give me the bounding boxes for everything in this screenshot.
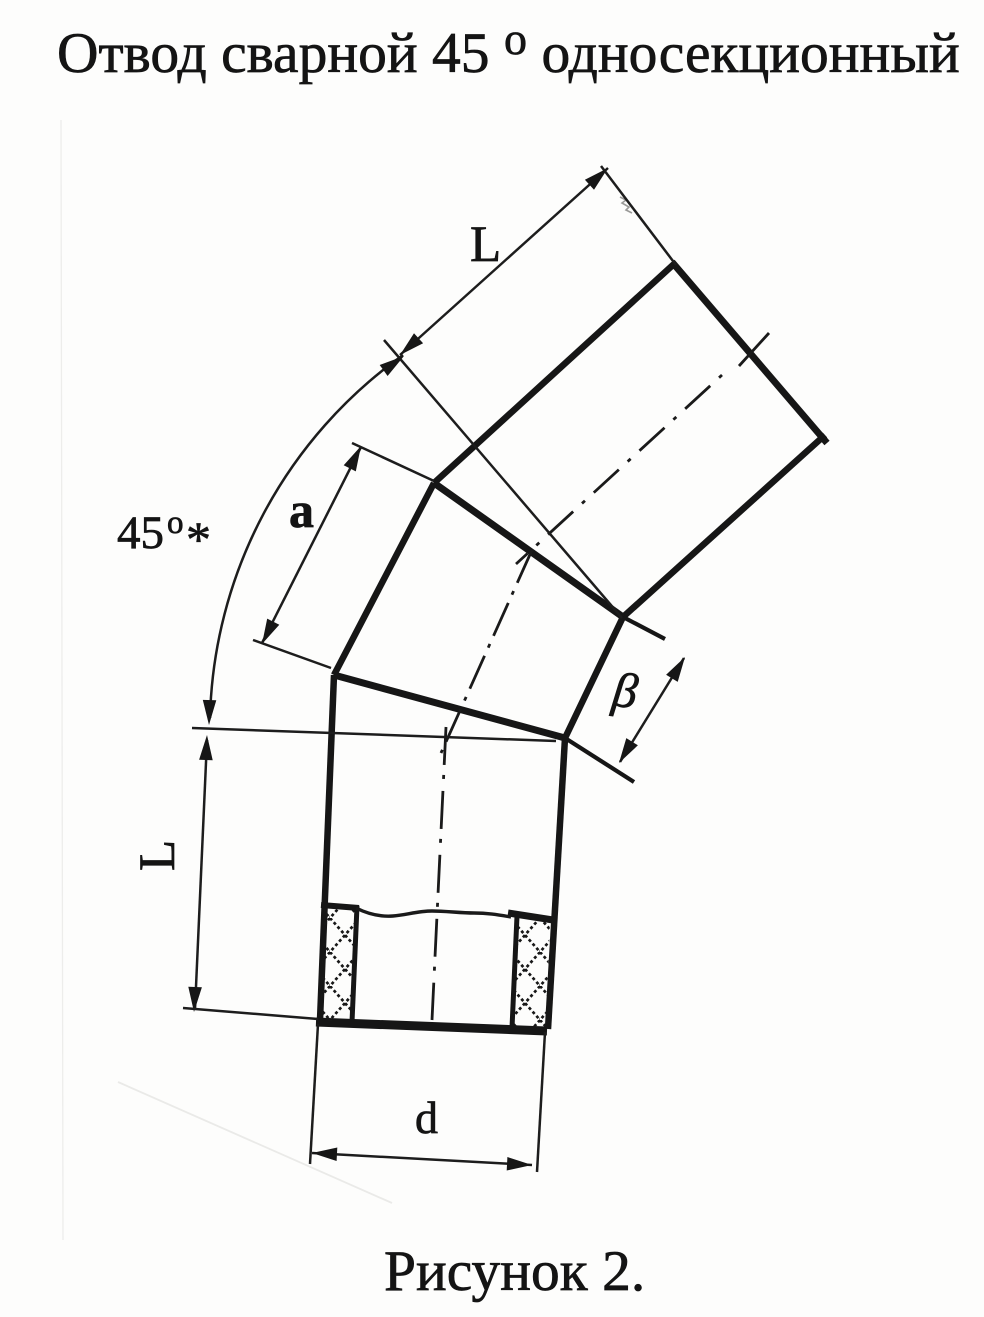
svg-text:Рисунок 2.: Рисунок 2. bbox=[384, 1240, 645, 1303]
svg-text:a: a bbox=[289, 482, 314, 538]
svg-text:*: * bbox=[186, 511, 211, 567]
svg-text:односекционный: односекционный bbox=[542, 22, 960, 85]
svg-text:d: d bbox=[415, 1092, 438, 1143]
svg-text:о: о bbox=[167, 505, 184, 541]
svg-text:L: L bbox=[130, 840, 186, 871]
svg-text:о: о bbox=[504, 13, 527, 64]
svg-text:L: L bbox=[470, 217, 501, 273]
svg-text:45: 45 bbox=[117, 507, 164, 559]
svg-text:Отвод сварной 45: Отвод сварной 45 bbox=[57, 22, 490, 85]
